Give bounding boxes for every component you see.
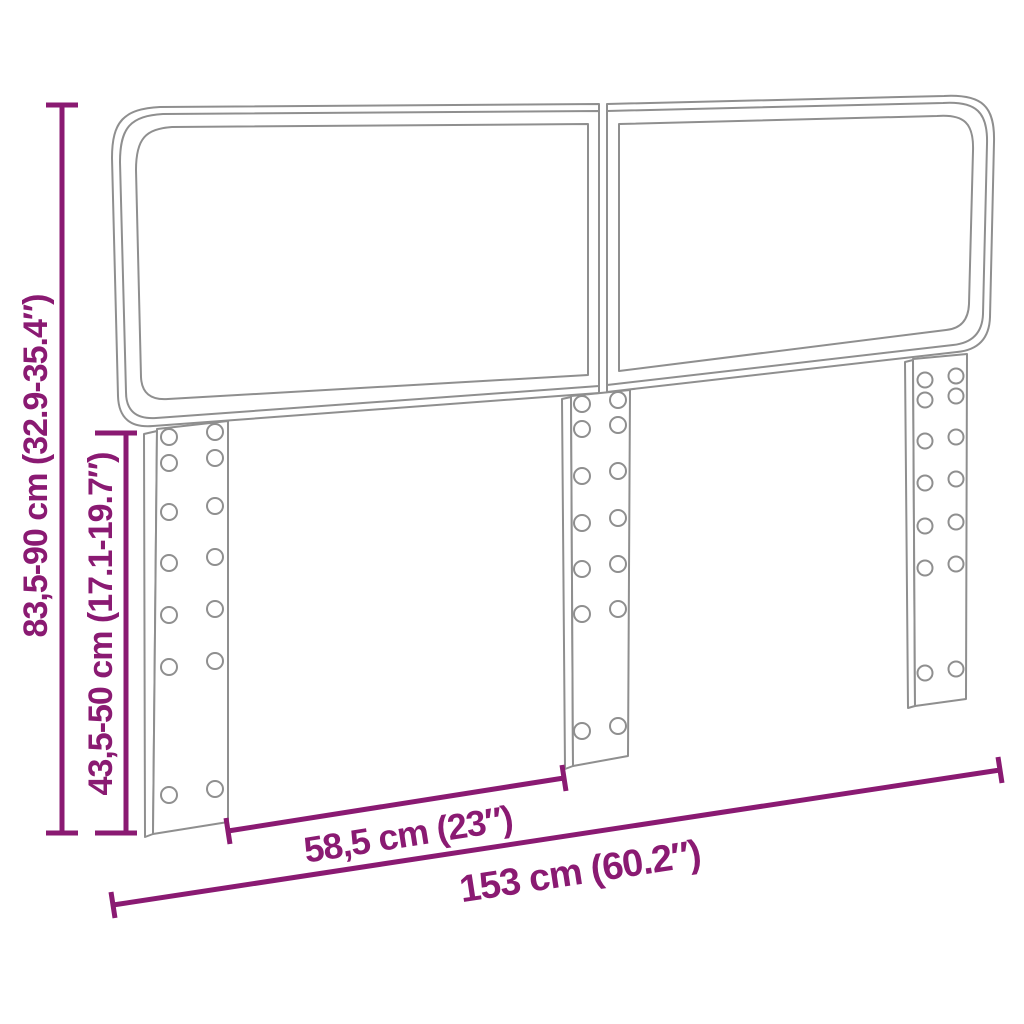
headboard-right-panel bbox=[607, 96, 994, 392]
headboard-left-panel bbox=[112, 104, 599, 426]
label-leg-height: 43,5-50 cm (17.1-19.7″) bbox=[82, 453, 120, 796]
leg-left-front-face bbox=[153, 421, 228, 834]
diagram-canvas: 83,5-90 cm (32.9-35.4″) 43,5-50 cm (17.1… bbox=[0, 0, 1024, 1024]
headboard-artwork bbox=[112, 96, 994, 837]
leg-middle-front-face bbox=[571, 390, 630, 766]
leg-middle bbox=[562, 390, 630, 769]
leg-right bbox=[905, 354, 967, 708]
dimension-diagram: 83,5-90 cm (32.9-35.4″) 43,5-50 cm (17.1… bbox=[0, 0, 1024, 1024]
label-total-height: 83,5-90 cm (32.9-35.4″) bbox=[17, 295, 55, 638]
leg-left bbox=[144, 421, 228, 837]
